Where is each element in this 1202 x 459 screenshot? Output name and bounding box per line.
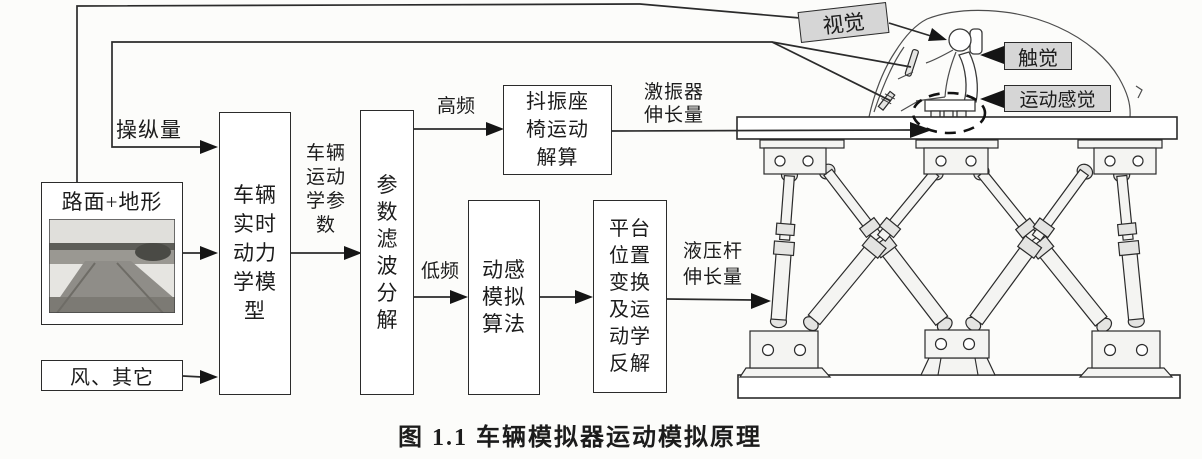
box-text-line: 学模 [233,268,277,297]
box-motion-feel: 运动感觉 [1004,85,1111,112]
motion-feel-label: 运动感觉 [1019,85,1095,112]
figure-caption: 图 1.1 车辆模拟器运动模拟原理 [0,417,1160,452]
box-text-line: 反解 [609,351,651,378]
lower-gimbal-bracket [921,330,995,375]
box-text-line: 解算 [537,144,579,172]
seat-base [925,100,975,111]
box-text-line: 实时 [233,210,277,239]
hydraulic-arrowhead [751,293,771,309]
box-touch: 触觉 [1004,42,1072,70]
label-vehicle-kinematics: 车辆 运动 学参 数 [302,142,350,238]
road-terrain-title: 路面+地形 [62,186,163,216]
highfreq-arrowhead [486,122,504,136]
vision-label: 视觉 [821,5,866,40]
figure-canvas: 路面+地形 风、其它 车辆 实时 动力 学模 型 参 数 滤 波 分 解 抖振座 [0,0,1202,459]
box-param-filter: 参 数 滤 波 分 解 [360,110,414,395]
box-text-line: 型 [244,297,266,326]
box-text-line: 数 [377,199,398,226]
lowfreq-arrowhead [450,290,468,304]
control-branch-wire [772,42,891,101]
label-low-freq: 低频 [421,261,459,283]
touch-label: 触觉 [1018,42,1058,71]
platform-deck [737,117,1177,139]
pedal [876,90,896,112]
hydraulic-leg [962,160,1097,335]
control-arrowhead [200,140,218,154]
box-text-line: 分 [377,280,398,307]
box-text-line: 椅运动 [526,116,589,144]
road-arrowhead [200,246,218,260]
touch-arrowhead [980,46,1004,64]
box-text-line: 算法 [482,311,526,338]
flow-connectors [77,4,1004,384]
box-text-line: 变换 [609,270,651,297]
label-exciter-elongation: 激振器 伸长量 [644,81,704,127]
upper-gimbal-bracket [916,140,998,174]
driver-arm [926,50,953,63]
label-high-freq: 高频 [437,96,475,118]
box-text-line: 解 [377,307,398,334]
box-platform-solve: 平台 位置 变换 及运 动学 反解 [593,200,667,393]
box-seat-calc: 抖振座 椅运动 解算 [503,85,612,175]
wind-label: 风、其它 [70,361,154,390]
box-text-line: 动力 [233,239,277,268]
box-text-line: 动感 [482,257,526,284]
label-hydraulic-elongation: 液压杆 伸长量 [683,239,743,291]
box-text-line: 动学 [609,324,651,351]
box-text-line: 抖振座 [526,88,589,116]
box-wind: 风、其它 [41,360,183,391]
label-control: 操纵量 [116,118,182,142]
box-vehicle-model: 车辆 实时 动力 学模 型 [219,112,291,395]
platform-arrowhead [575,290,593,304]
seat-back [959,52,977,102]
hydraulic-leg [1111,167,1147,328]
box-text-line: 位置 [609,243,651,270]
box-text-line: 及运 [609,297,651,324]
box-text-line: 参 [377,172,398,199]
box-text-line: 车辆 [233,181,277,210]
box-text-line: 滤 [377,226,398,253]
driver-head [949,29,971,51]
hydraulic-leg [768,167,800,328]
seat-headrest [970,29,982,54]
driver-torso [945,52,956,97]
rear-notch-line [1136,86,1142,98]
lower-gimbal-bracket [1080,331,1172,377]
vision-arrow-wire [889,23,931,36]
platform-base [738,375,1180,398]
box-text-line: 波 [377,253,398,280]
box-text-line: 平台 [609,216,651,243]
stewart-platform-illustration [737,117,1180,398]
vision-arrowhead [928,28,947,41]
road-photo [49,219,175,313]
box-text-line: 模拟 [482,284,526,311]
lower-gimbal-bracket [740,331,830,377]
box-motion-sim: 动感 模拟 算法 [468,200,540,395]
box-road-terrain: 路面+地形 [41,182,183,325]
wind-arrowhead [200,370,218,384]
